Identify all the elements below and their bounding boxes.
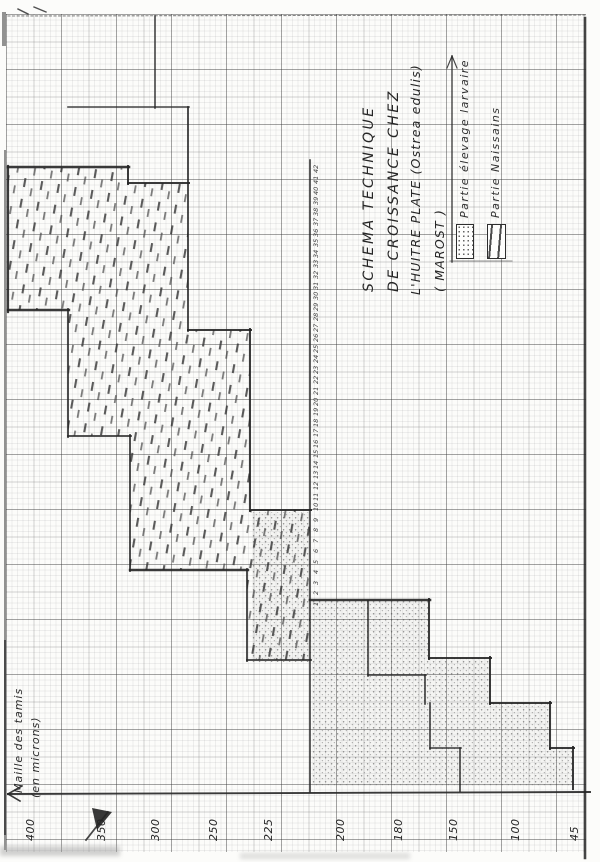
step-line	[447, 56, 452, 68]
day-number: 39	[313, 197, 320, 205]
day-number: 35	[313, 239, 320, 247]
day-number: 6	[313, 549, 320, 553]
day-number: 5	[313, 560, 320, 564]
legend-swatch-naissains	[487, 224, 506, 259]
step-line	[8, 792, 590, 794]
y-tick-label: 150	[448, 819, 459, 842]
day-number: 21	[313, 387, 320, 395]
chart-title-line-4: ( MAROST )	[434, 209, 447, 292]
day-number: 37	[313, 218, 320, 226]
day-number: 25	[313, 345, 320, 353]
step-line	[452, 56, 457, 68]
y-tick-label: 350	[96, 819, 107, 842]
y-tick-label: 400	[25, 819, 36, 842]
day-number: 33	[313, 260, 320, 268]
day-number: 27	[313, 323, 320, 331]
step-line	[8, 794, 20, 801]
day-number: 17	[313, 429, 320, 437]
day-number: 13	[313, 471, 320, 479]
day-number: 41	[313, 176, 320, 184]
day-number: 18	[313, 418, 320, 426]
y-tick-label: 45	[569, 826, 580, 841]
y-tick-label: 225	[263, 819, 274, 842]
day-number: 36	[313, 228, 320, 236]
day-number: 1	[313, 602, 320, 606]
day-number: 30	[313, 292, 320, 300]
step-line	[34, 7, 46, 12]
step-line	[18, 9, 28, 14]
scan-smudge-bottom-mid	[240, 853, 410, 859]
day-number: 34	[313, 250, 320, 258]
day-number: 24	[313, 355, 320, 363]
scan-smudge-bottom-left	[0, 846, 120, 856]
day-number: 23	[313, 366, 320, 374]
chart-title-line-2: DE CROISSANCE CHEZ	[387, 89, 401, 292]
scanned-page: SCHEMA TECHNIQUE DE CROISSANCE CHEZ L'HU…	[0, 0, 600, 862]
y-tick-label: 100	[510, 819, 521, 842]
day-number: 16	[313, 439, 320, 447]
day-number: 8	[313, 528, 320, 532]
day-number: 12	[313, 482, 320, 490]
day-number: 38	[313, 207, 320, 215]
day-number: 14	[313, 461, 320, 469]
day-number: 22	[313, 376, 320, 384]
y-tick-label: 200	[335, 819, 346, 842]
step-line	[8, 15, 585, 16]
y-tick-label: 250	[208, 819, 219, 842]
day-number: 11	[313, 492, 320, 500]
day-number: 28	[313, 313, 320, 321]
day-number: 2	[313, 591, 320, 595]
day-number: 32	[313, 271, 320, 279]
y-axis-title-line-1: Maille des tamis	[13, 688, 24, 793]
day-number: 3	[313, 581, 320, 585]
scan-edge-corner	[2, 12, 6, 46]
scan-edge-left-dark	[4, 640, 6, 835]
legend-label-naissains: Partie Naissains	[490, 106, 501, 218]
y-tick-label: 300	[150, 819, 161, 842]
day-number: 20	[313, 397, 320, 405]
chart-drawing	[0, 0, 600, 862]
day-number: 15	[313, 450, 320, 458]
y-tick-label: 180	[393, 819, 404, 842]
day-number: 40	[313, 186, 320, 194]
y-axis-title-line-2: (en microns)	[30, 716, 41, 798]
day-number: 10	[313, 503, 320, 511]
day-number: 42	[313, 165, 320, 173]
day-number: 9	[313, 517, 320, 521]
chart-title-line-1: SCHEMA TECHNIQUE	[362, 105, 376, 292]
legend-swatch-larvaire	[456, 224, 474, 259]
legend-label-larvaire: Partie élevage larvaire	[459, 59, 470, 218]
day-number: 4	[313, 570, 320, 574]
day-number: 29	[313, 302, 320, 310]
band-larvaire	[252, 512, 573, 786]
chart-title-line-3: L'HUITRE PLATE (Ostrea edulis)	[410, 64, 423, 295]
day-number: 31	[313, 281, 320, 289]
day-number: 7	[313, 539, 320, 543]
day-number: 26	[313, 334, 320, 342]
day-number: 19	[313, 408, 320, 416]
